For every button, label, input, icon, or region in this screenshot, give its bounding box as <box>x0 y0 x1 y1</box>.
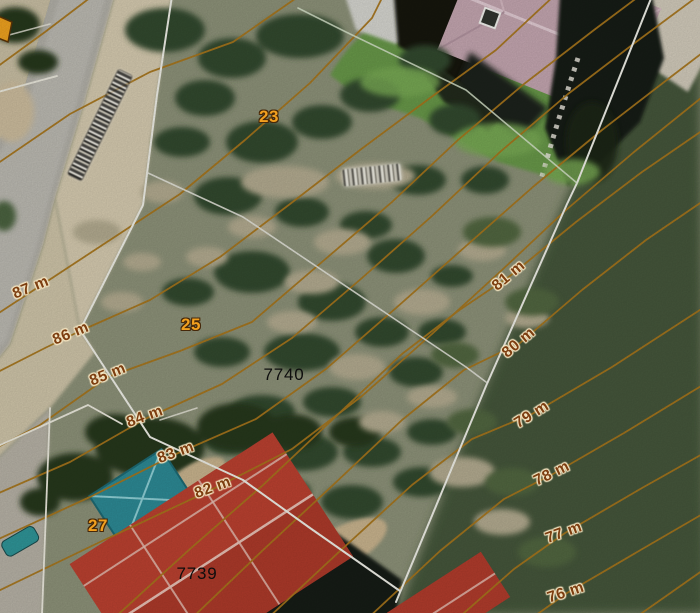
erf-label-7740: 7740 <box>263 365 304 385</box>
contour-label-83m: 83 m <box>155 438 197 468</box>
contour-label-86m: 86 m <box>50 319 92 350</box>
contour-label-84m: 84 m <box>124 402 166 432</box>
erf-label-7739: 7739 <box>176 564 217 584</box>
contour-label-82m: 82 m <box>192 473 234 503</box>
contour-label-81m: 81 m <box>489 257 529 295</box>
contour-label-85m: 85 m <box>87 360 129 391</box>
illegible-road-text <box>68 70 132 181</box>
map-canvas[interactable]: 87 m 86 m 85 m 84 m 83 m 82 m 81 m 80 m … <box>0 0 700 613</box>
contour-label-87m: 87 m <box>10 273 52 304</box>
contour-label-76m: 76 m <box>545 579 586 608</box>
parcel-label-23: 23 <box>259 107 279 127</box>
contour-label-77m: 77 m <box>543 518 585 548</box>
contour-label-79m: 79 m <box>511 397 553 432</box>
parcel-label-27: 27 <box>88 516 108 536</box>
contour-label-78m: 78 m <box>531 458 573 491</box>
illegible-annotation-text <box>342 164 401 187</box>
contour-label-80m: 80 m <box>499 324 539 362</box>
label-overlay: 87 m 86 m 85 m 84 m 83 m 82 m 81 m 80 m … <box>0 0 700 613</box>
parcel-label-25: 25 <box>181 315 201 335</box>
